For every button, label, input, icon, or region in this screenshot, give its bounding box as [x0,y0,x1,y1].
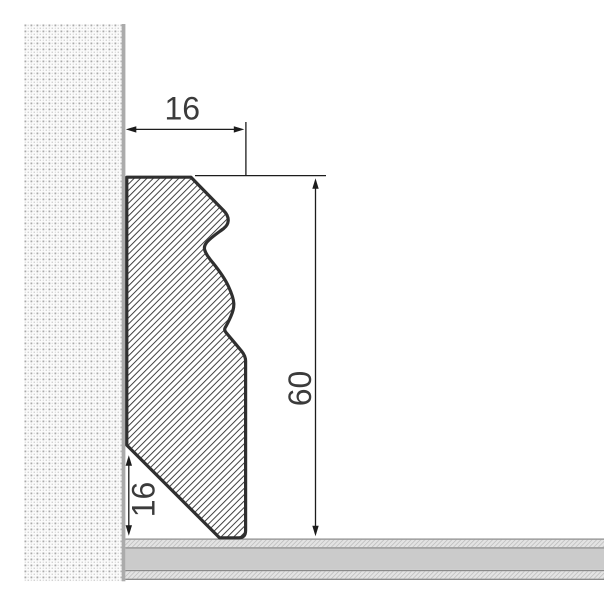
svg-text:16: 16 [126,482,162,518]
svg-text:60: 60 [282,371,318,407]
svg-text:16: 16 [165,91,201,127]
